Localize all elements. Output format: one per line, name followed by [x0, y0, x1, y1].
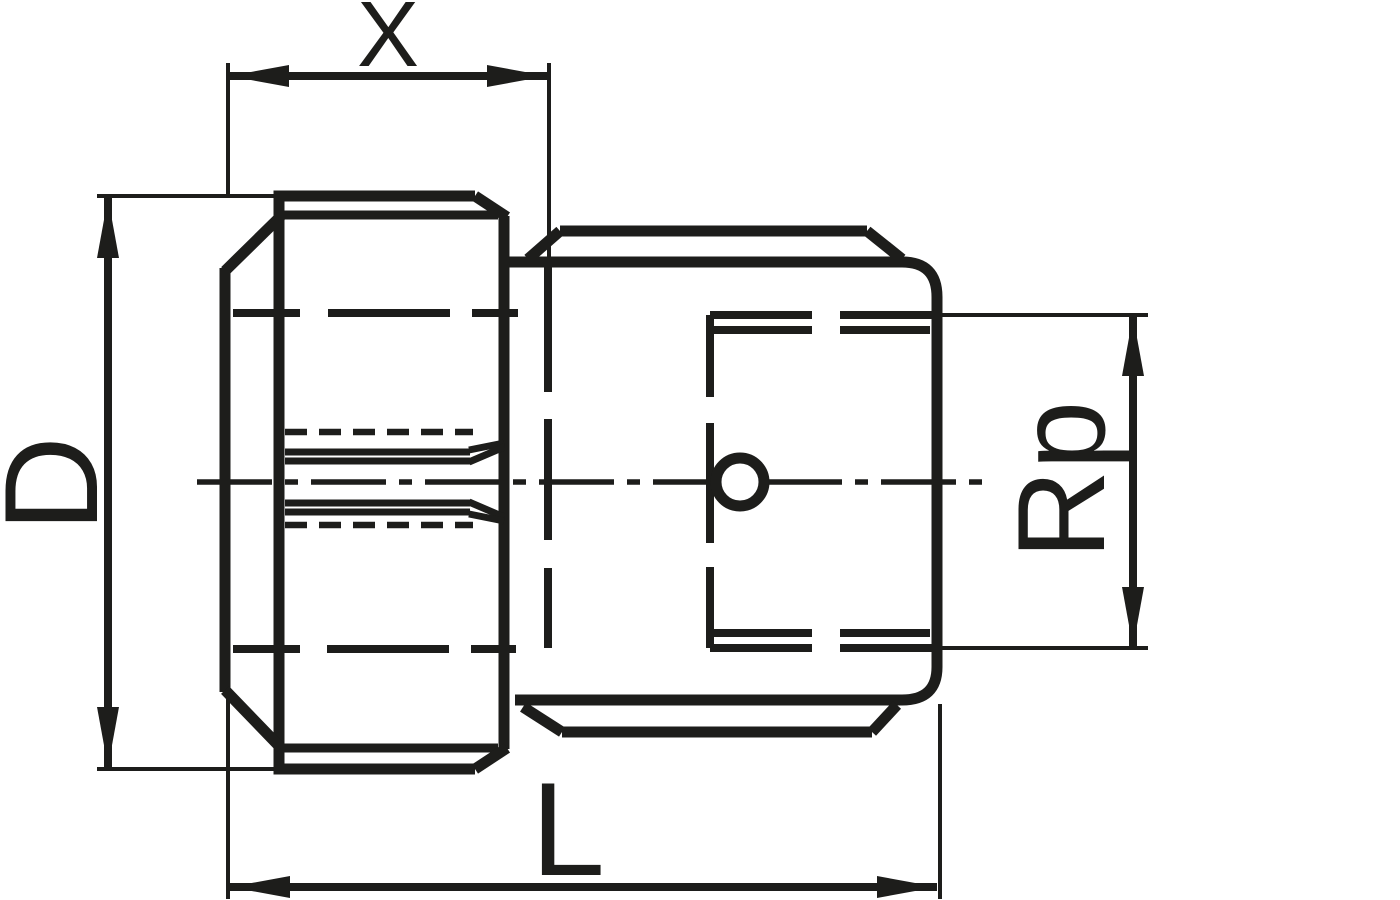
- x-arrow-left: [229, 65, 289, 87]
- l-arrow-right: [877, 876, 937, 898]
- d-arrow-bottom: [97, 707, 119, 767]
- x-dimension-label: X: [357, 0, 419, 86]
- rp-arrow-bottom: [1122, 587, 1144, 647]
- nut-internal-bore: [285, 432, 504, 525]
- dimension-rp: Rp: [930, 315, 1148, 648]
- rp-dimension-label: Rp: [993, 401, 1131, 560]
- technical-drawing-page: X D Rp L: [0, 0, 1400, 900]
- dimension-l: L: [228, 693, 940, 900]
- l-arrow-left: [230, 876, 290, 898]
- body-bottom-right-chamfer: [872, 705, 897, 732]
- body-top-right-chamfer: [867, 231, 902, 259]
- body-top-left-chamfer: [528, 231, 560, 259]
- d-arrow-top: [97, 198, 119, 258]
- body-bottom-left-chamfer: [523, 707, 562, 732]
- fitting-cross-section-drawing: X D Rp L: [0, 0, 1400, 900]
- d-dimension-label: D: [0, 436, 126, 532]
- x-arrow-right: [487, 65, 547, 87]
- body-hole-circle: [716, 458, 764, 506]
- l-dimension-label: L: [531, 756, 605, 900]
- nut-bottom-left-chamfer: [225, 690, 281, 748]
- nut-top-left-chamfer: [225, 216, 281, 271]
- rp-arrow-top: [1122, 316, 1144, 376]
